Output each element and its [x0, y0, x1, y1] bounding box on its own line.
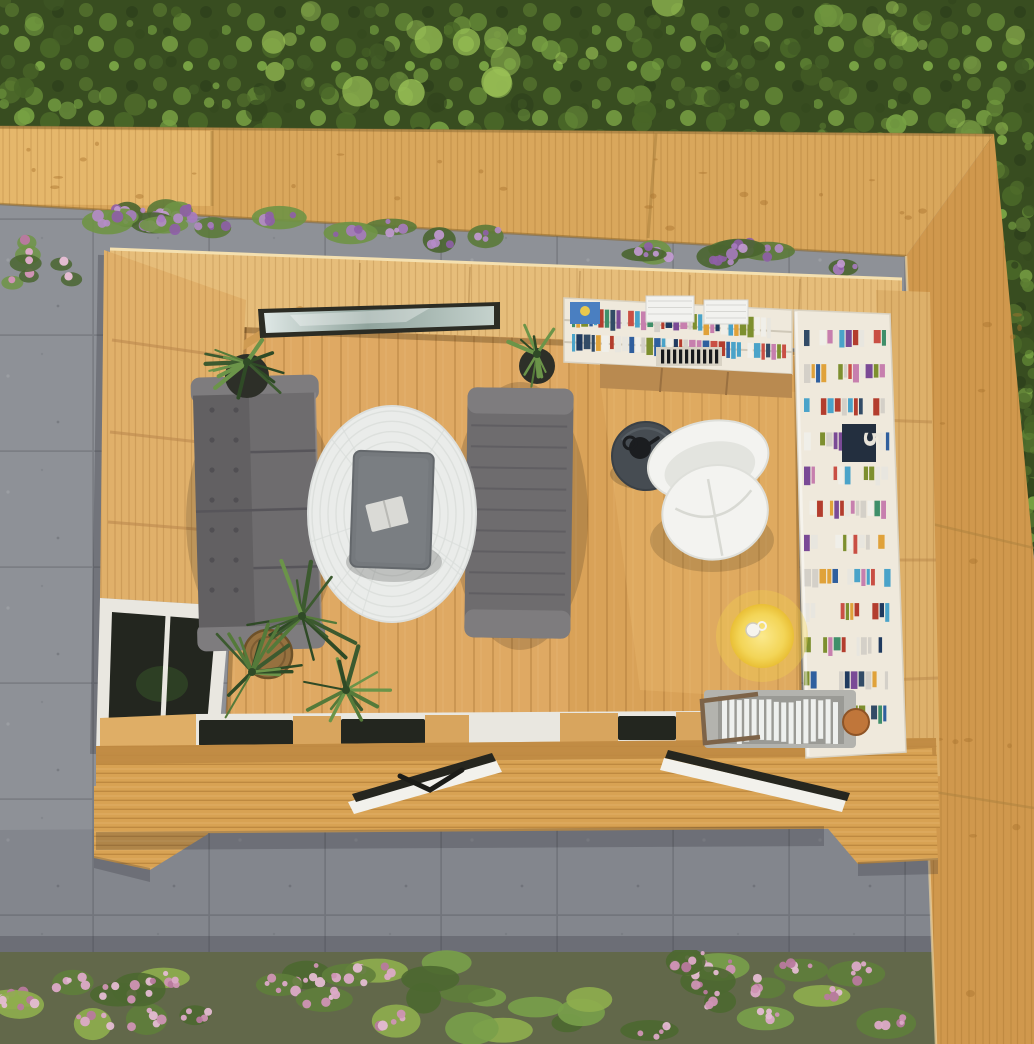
bed-flower	[670, 961, 680, 971]
hedge-blob	[237, 93, 251, 107]
bed-flower	[653, 1034, 659, 1040]
hedge-blob	[1015, 217, 1030, 232]
hedge-highlight	[555, 52, 567, 64]
magazine-spine	[781, 702, 786, 741]
book-spine	[880, 364, 885, 377]
hedge-highlight	[995, 122, 1008, 135]
book-spine	[602, 335, 609, 351]
fence-knot	[291, 184, 295, 188]
book-spine	[646, 338, 653, 355]
plant-center	[533, 350, 541, 358]
bottom-window-glass	[618, 716, 676, 740]
hedge-blob	[819, 123, 826, 130]
book-spine	[828, 398, 834, 413]
book-spine	[859, 398, 863, 414]
book-spine	[804, 330, 809, 346]
bed-flower	[751, 985, 759, 993]
fence-knot	[869, 179, 875, 181]
cd-tick	[679, 350, 682, 364]
bottom-window-glass	[341, 719, 425, 745]
hedge-blob	[678, 87, 697, 106]
hedge-blob	[941, 22, 959, 40]
book-spine	[861, 637, 867, 654]
hedge-highlight	[265, 62, 284, 81]
book-spine	[844, 364, 847, 377]
book-spine	[859, 671, 865, 686]
heather-flower	[157, 215, 165, 223]
hedge-blob	[302, 59, 313, 70]
hedge-blob	[788, 42, 801, 55]
book-spine	[804, 569, 811, 587]
magazine-spine	[729, 699, 734, 739]
book-spine	[872, 671, 876, 687]
heather-flower	[837, 260, 845, 268]
book-spine	[885, 603, 889, 622]
book-spine	[864, 467, 868, 480]
fence-knot	[650, 193, 656, 198]
corner-flower	[25, 248, 33, 256]
book-spine	[860, 501, 866, 518]
heather-flower	[643, 252, 648, 257]
fence-knot	[53, 176, 63, 179]
book-spine	[641, 337, 645, 352]
bed-flower	[331, 990, 340, 999]
book-spine	[857, 637, 860, 656]
hedge-blob	[521, 59, 530, 68]
hedge-blob	[704, 90, 720, 106]
bed-flower	[282, 981, 287, 986]
book-spine	[827, 330, 832, 343]
hedge-blob	[716, 50, 733, 67]
quilt-seam	[471, 446, 567, 447]
hedge-blob	[917, 11, 932, 26]
bed-flower	[302, 1000, 311, 1009]
bed-flower	[265, 981, 270, 986]
hedge-blob	[255, 85, 271, 101]
cd-tick	[673, 350, 676, 364]
bed-shrub	[793, 985, 850, 1007]
hedge-highlight	[481, 67, 511, 97]
heather-flower	[103, 220, 110, 227]
book-spine	[866, 535, 870, 550]
fence-knot	[969, 558, 978, 564]
quilt-seam	[470, 509, 566, 510]
bed-flower	[728, 959, 732, 963]
book-spine	[868, 637, 871, 653]
book-spine	[754, 343, 760, 358]
bed-flower	[321, 998, 330, 1007]
book-spine	[572, 334, 575, 352]
book-spine	[610, 310, 615, 331]
hedge-blob	[361, 48, 371, 58]
hedge-blob	[204, 97, 214, 107]
bed-flower	[792, 967, 799, 974]
book-spine	[615, 336, 621, 352]
book-spine	[850, 603, 853, 620]
shelf-plaque-number: 5	[858, 430, 887, 448]
fence-knot	[1013, 313, 1022, 317]
chaise-head-cushion	[467, 387, 573, 414]
tuft-button	[209, 467, 214, 472]
book-spine	[881, 398, 885, 413]
fence-knot	[95, 142, 99, 146]
scene-canvas: 5	[0, 0, 1034, 1044]
heather-flower	[398, 224, 408, 234]
book-spine	[767, 318, 771, 339]
heather-flower	[446, 240, 454, 248]
hedge-blob	[23, 63, 39, 79]
magazine-spine	[803, 699, 808, 743]
book-spine	[610, 336, 614, 349]
book-spine	[777, 344, 781, 358]
book-spine	[811, 603, 816, 618]
hedge-blob	[163, 28, 171, 36]
cd-tick	[661, 350, 664, 364]
tuft-button	[233, 587, 238, 592]
magazine-spine	[722, 699, 727, 740]
book-spine	[838, 467, 843, 485]
book-spine	[874, 501, 879, 517]
bed-flower	[81, 981, 91, 991]
book-spine	[846, 330, 852, 347]
plant-center	[248, 668, 256, 676]
book-spine	[755, 317, 760, 335]
bed-flower	[127, 995, 135, 1003]
book-spine	[834, 467, 838, 481]
book-spine	[635, 311, 640, 327]
corner-flower	[20, 235, 30, 245]
magazine-spine	[811, 699, 816, 741]
fence-knot	[644, 205, 653, 209]
hedge-blob	[1018, 241, 1031, 254]
book-spine	[804, 467, 810, 486]
book-spine	[865, 671, 871, 689]
book-spine	[851, 671, 858, 689]
book-spine	[605, 310, 609, 328]
bed-flower	[145, 990, 152, 997]
tuft-button	[233, 467, 238, 472]
hedge-blob	[1011, 262, 1018, 269]
bed-flower	[775, 1012, 780, 1017]
book-spine	[866, 364, 873, 378]
fence-knot	[978, 389, 985, 393]
hedge-blob	[189, 84, 199, 94]
book-spine	[872, 603, 878, 619]
book-spine	[839, 330, 844, 348]
book-spine	[641, 311, 646, 330]
bed-flower	[76, 1014, 81, 1019]
book-spine	[855, 603, 860, 616]
hedge-blob	[518, 109, 531, 122]
bed-flower	[127, 1022, 136, 1031]
hedge-blob	[369, 43, 387, 61]
bed-flower	[663, 1025, 667, 1029]
yellow-table	[730, 604, 794, 668]
book-spine	[820, 432, 825, 445]
hedge-blob	[364, 6, 376, 18]
bed-flower	[753, 974, 762, 983]
hedge-blob	[640, 61, 661, 82]
book-spine	[827, 569, 831, 584]
heather-flower	[852, 264, 857, 269]
fence-knot	[665, 225, 674, 230]
book-spine	[846, 603, 849, 620]
fence-knot	[905, 215, 912, 219]
fence-knot	[1017, 325, 1022, 332]
fence-knot	[32, 168, 36, 172]
aerial-garden-room-render: 5	[0, 0, 1034, 1044]
book-spine	[884, 569, 890, 587]
bed-flower	[703, 990, 708, 995]
fence-knot	[479, 169, 484, 173]
book-spine	[835, 398, 841, 411]
fence-knot	[900, 211, 905, 215]
corner-flower	[64, 272, 72, 280]
magazine-spine	[744, 699, 749, 742]
bed-flower	[829, 992, 839, 1002]
heather-flower	[194, 222, 202, 230]
book-spine	[853, 330, 858, 345]
quilt-seam	[469, 572, 565, 573]
bed-flower	[757, 1008, 764, 1015]
plant-center	[243, 358, 251, 366]
fence-knot	[739, 192, 748, 197]
tuft-button	[209, 587, 214, 592]
hedge-blob	[953, 73, 961, 81]
hedge-blob	[647, 15, 661, 29]
tuft-button	[233, 557, 238, 562]
hedge-blob	[993, 77, 1011, 95]
hedge-blob	[821, 5, 844, 28]
corner-flower	[59, 257, 68, 266]
book-spine	[878, 705, 882, 723]
heather-flower	[385, 228, 394, 237]
hedge-blob	[53, 25, 74, 46]
bed-flower	[353, 963, 363, 973]
book-spine	[848, 535, 853, 549]
book-spine	[823, 637, 827, 653]
book-spine	[880, 603, 884, 617]
fence-knot	[136, 194, 144, 199]
book-spine	[629, 337, 634, 353]
heather-flower	[709, 256, 718, 265]
book-spine	[879, 637, 882, 652]
hedge-highlight	[862, 13, 885, 36]
book-spine	[622, 337, 628, 352]
hedge-blob	[126, 20, 133, 27]
hedge-blob	[634, 101, 656, 123]
bed-shrub	[445, 1012, 498, 1044]
bed-flower	[824, 994, 830, 1000]
book-spine	[882, 330, 886, 346]
fence-knot	[698, 172, 707, 174]
hedge-highlight	[891, 30, 908, 47]
book-spine	[869, 467, 874, 481]
bed-flower	[681, 962, 691, 972]
book-spine	[816, 364, 820, 382]
book-spine	[810, 501, 816, 515]
hedge-blob	[890, 119, 900, 129]
bottom-window-glass	[199, 720, 293, 746]
hedge-blob	[18, 107, 35, 124]
tuft-button	[209, 497, 214, 502]
book-spine	[840, 501, 844, 516]
book-spine	[761, 343, 764, 359]
book-spine	[845, 467, 851, 485]
bed-flower	[637, 1030, 643, 1036]
bed-flower	[344, 973, 355, 984]
book-spine	[853, 535, 857, 554]
bed-flower	[276, 988, 281, 993]
hedge-highlight	[1006, 26, 1025, 45]
heather-flower	[169, 224, 180, 235]
magazine-spine	[826, 699, 831, 743]
hedge-highlight	[262, 30, 285, 53]
tuft-button	[209, 437, 214, 442]
book-spine	[726, 342, 730, 358]
bed-edge-shadow	[0, 936, 935, 952]
book-spine	[881, 501, 886, 519]
tuft-button	[209, 557, 214, 562]
bed-flower	[196, 1017, 203, 1024]
book-spine	[861, 569, 865, 586]
book-spine	[761, 317, 766, 336]
fence-knot	[969, 834, 977, 838]
bed-flower	[861, 961, 866, 966]
bed-flower	[17, 1004, 24, 1011]
cd-tick	[703, 350, 706, 364]
heather-flower	[354, 225, 363, 234]
book-spine	[804, 432, 811, 450]
tuft-button	[233, 527, 238, 532]
cd-tick	[697, 350, 700, 364]
magazine-spine	[796, 701, 801, 744]
book-spine	[839, 671, 844, 690]
hedge-blob	[507, 28, 526, 47]
heather-flower	[221, 221, 231, 231]
book-spine	[834, 501, 839, 519]
cd-tick	[685, 350, 688, 364]
heather-flower	[653, 251, 659, 257]
book-spine	[698, 314, 702, 330]
book-spine	[821, 398, 826, 415]
heather-flower	[265, 216, 275, 226]
book-spine	[848, 364, 851, 379]
bed-flower	[150, 978, 156, 984]
bed-flower	[99, 992, 107, 1000]
book-spine	[873, 398, 879, 415]
book-spine	[854, 569, 860, 582]
book-spine	[867, 501, 873, 516]
magazine-spine	[759, 700, 764, 740]
magazine-spine	[818, 700, 823, 738]
hedge-blob	[304, 78, 314, 88]
bed-flower	[30, 999, 40, 1009]
fence-knot	[966, 990, 975, 997]
hedge-blob	[427, 92, 447, 112]
bed-flower	[705, 1001, 713, 1009]
bed-flower	[391, 1019, 397, 1025]
heather-flower	[762, 252, 772, 262]
hedge-highlight	[917, 40, 927, 50]
hedge-blob	[1024, 408, 1033, 417]
book-spine	[875, 467, 880, 486]
hedge-blob	[705, 34, 724, 53]
book-spine	[819, 330, 826, 345]
fence-left-grain	[0, 129, 212, 206]
white-book-stack	[646, 296, 694, 322]
plant-center	[342, 686, 350, 694]
hedge-blob	[1020, 278, 1030, 288]
fence-knot	[500, 187, 508, 191]
fence-knot	[80, 157, 87, 161]
fence-knot	[918, 208, 926, 213]
bed-flower	[713, 970, 718, 975]
heather-flower	[140, 208, 145, 213]
bed-flower	[149, 1011, 158, 1020]
hedge-blob	[1010, 181, 1024, 195]
fence-knot	[1012, 824, 1020, 830]
book-spine	[771, 344, 776, 360]
book-spine	[835, 535, 842, 548]
bed-flower	[111, 982, 119, 990]
bed-flower	[866, 967, 872, 973]
heather-flower	[173, 213, 183, 223]
heather-flower	[474, 233, 482, 241]
sofa-right	[464, 387, 573, 638]
hedge-highlight	[886, 1, 899, 14]
book-spine	[812, 364, 815, 378]
book-spine	[812, 569, 818, 588]
hedge-blob	[25, 16, 45, 36]
hedge-blob	[1017, 337, 1034, 354]
book-spine	[843, 535, 846, 551]
hedge-blob	[784, 39, 790, 45]
book-spine	[804, 364, 810, 383]
book-spine	[592, 335, 595, 352]
heather-flower	[634, 247, 643, 256]
hedge-blob	[59, 102, 77, 120]
book-spine	[851, 501, 855, 514]
fence-knot	[437, 160, 442, 164]
bed-flower	[851, 961, 861, 971]
fence-knot	[983, 322, 992, 327]
bed-flower	[204, 1008, 212, 1016]
book-spine	[834, 432, 838, 449]
heather-flower	[483, 230, 489, 236]
hedge-blob	[1025, 384, 1034, 393]
heather-flower	[112, 211, 124, 223]
hedge-blob	[213, 82, 220, 89]
hedge-highlight	[398, 79, 425, 106]
hedge-blob	[626, 26, 642, 42]
fence-knot	[337, 153, 345, 155]
bed-flower	[714, 991, 720, 997]
bed-flower	[309, 973, 317, 981]
heather-flower	[738, 244, 747, 253]
fence-knot	[819, 193, 823, 196]
bed-shrub	[401, 966, 459, 992]
bed-flower	[378, 1021, 388, 1031]
heather-flower	[333, 232, 338, 237]
bed-shrub	[566, 987, 612, 1012]
book-spine	[826, 432, 832, 446]
hedge-blob	[1008, 222, 1016, 230]
hedge-highlight	[301, 1, 321, 21]
bed-flower	[186, 1008, 192, 1014]
bed-flower	[101, 1013, 106, 1018]
heather-flower	[726, 248, 738, 260]
